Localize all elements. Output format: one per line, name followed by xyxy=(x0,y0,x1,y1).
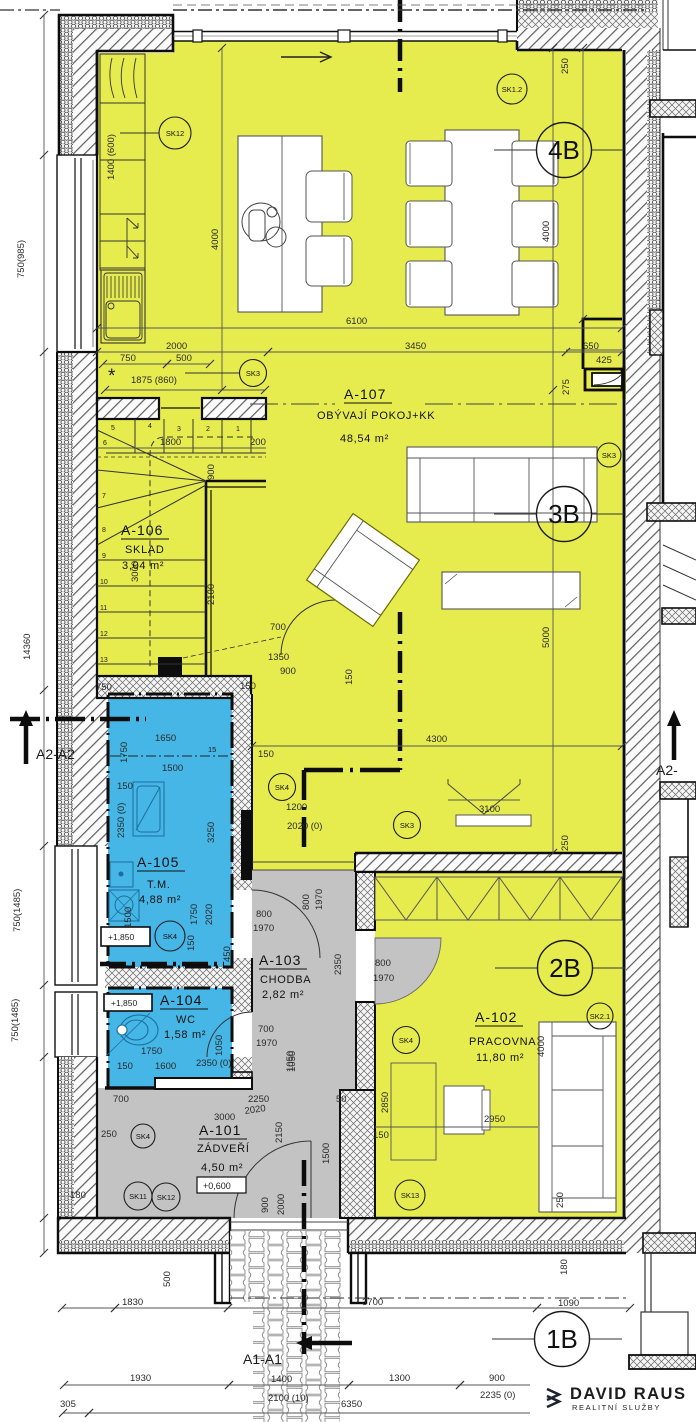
svg-text:SK3: SK3 xyxy=(246,369,260,378)
svg-text:SK1.2: SK1.2 xyxy=(502,85,522,94)
svg-text:4000: 4000 xyxy=(536,1036,547,1057)
svg-text:4000: 4000 xyxy=(210,229,221,250)
svg-text:A2-: A2- xyxy=(656,762,678,778)
svg-text:250: 250 xyxy=(560,58,571,74)
svg-text:3,04 m²: 3,04 m² xyxy=(122,560,164,572)
svg-text:1970: 1970 xyxy=(373,973,394,984)
svg-text:1800: 1800 xyxy=(160,437,181,448)
svg-text:1050: 1050 xyxy=(214,1035,225,1056)
svg-text:150: 150 xyxy=(186,935,197,951)
svg-text:SK4: SK4 xyxy=(136,1132,150,1141)
svg-text:500: 500 xyxy=(176,353,192,364)
svg-text:48,54 m²: 48,54 m² xyxy=(340,433,389,445)
svg-text:2850: 2850 xyxy=(380,1092,391,1113)
svg-text:1,58 m²: 1,58 m² xyxy=(164,1029,206,1041)
svg-text:250: 250 xyxy=(560,835,571,851)
svg-text:900: 900 xyxy=(489,1373,505,1384)
svg-text:2350: 2350 xyxy=(333,954,344,975)
svg-text:250: 250 xyxy=(555,1192,566,1208)
svg-text:2020: 2020 xyxy=(204,904,215,925)
svg-text:750(1485): 750(1485) xyxy=(10,999,21,1042)
svg-text:1970: 1970 xyxy=(314,889,325,910)
svg-text:2000: 2000 xyxy=(166,341,187,352)
svg-text:1750: 1750 xyxy=(141,1046,162,1057)
svg-text:200: 200 xyxy=(250,437,266,448)
svg-text:SK2.1: SK2.1 xyxy=(590,1012,610,1021)
svg-text:A-103: A-103 xyxy=(259,952,301,968)
svg-text:750(1485): 750(1485) xyxy=(12,889,23,932)
svg-text:15: 15 xyxy=(208,745,216,754)
svg-text:425: 425 xyxy=(596,355,612,366)
svg-text:SKLAD: SKLAD xyxy=(125,544,165,556)
svg-text:3100: 3100 xyxy=(479,804,500,815)
svg-text:SK11: SK11 xyxy=(129,1192,147,1201)
svg-text:A-106: A-106 xyxy=(121,522,163,538)
svg-text:1970: 1970 xyxy=(256,1038,277,1049)
svg-text:6100: 6100 xyxy=(346,316,367,327)
svg-text:2: 2 xyxy=(206,426,210,433)
svg-text:1650: 1650 xyxy=(155,733,176,744)
svg-text:150: 150 xyxy=(373,1130,389,1141)
svg-text:4300: 4300 xyxy=(426,734,447,745)
svg-text:SK3: SK3 xyxy=(400,821,414,830)
svg-text:500: 500 xyxy=(162,1271,173,1287)
svg-text:1500: 1500 xyxy=(321,1143,332,1164)
svg-text:1875 (860): 1875 (860) xyxy=(131,375,177,386)
svg-text:150: 150 xyxy=(117,1061,133,1072)
svg-text:14360: 14360 xyxy=(22,634,33,660)
svg-text:1050: 1050 xyxy=(285,1051,296,1072)
svg-text:1500: 1500 xyxy=(162,763,183,774)
svg-text:800: 800 xyxy=(301,894,312,910)
svg-text:A1-A1: A1-A1 xyxy=(243,1351,282,1367)
svg-text:1400: 1400 xyxy=(271,1374,292,1385)
svg-text:SK4: SK4 xyxy=(275,783,289,792)
svg-text:ZÁDVEŘÍ: ZÁDVEŘÍ xyxy=(197,1142,250,1155)
svg-text:DAVID RAUS: DAVID RAUS xyxy=(570,1385,686,1403)
svg-text:13: 13 xyxy=(100,657,108,664)
svg-text:1750: 1750 xyxy=(119,742,130,763)
svg-text:2350 (0): 2350 (0) xyxy=(116,803,127,838)
svg-text:1200: 1200 xyxy=(286,802,307,813)
svg-text:4,50 m²: 4,50 m² xyxy=(201,1162,243,1174)
svg-text:T.M.: T.M. xyxy=(147,879,171,891)
svg-text:+1,850: +1,850 xyxy=(111,998,138,1008)
svg-text:700: 700 xyxy=(270,622,286,633)
svg-text:900: 900 xyxy=(280,666,296,677)
svg-text:A-101: A-101 xyxy=(199,1122,241,1138)
svg-text:700: 700 xyxy=(258,1024,274,1035)
svg-text:305: 305 xyxy=(60,1399,76,1410)
svg-text:SK4: SK4 xyxy=(163,932,177,941)
svg-text:SK13: SK13 xyxy=(401,1191,419,1200)
svg-text:2,82 m²: 2,82 m² xyxy=(262,989,304,1001)
svg-text:50: 50 xyxy=(336,1094,347,1105)
svg-text:3B: 3B xyxy=(548,499,580,529)
svg-text:5000: 5000 xyxy=(541,627,552,648)
svg-text:3: 3 xyxy=(177,426,181,433)
svg-text:1600: 1600 xyxy=(155,1061,176,1072)
svg-text:9: 9 xyxy=(102,553,106,560)
svg-text:2235 (0): 2235 (0) xyxy=(480,1390,515,1401)
svg-text:1300: 1300 xyxy=(389,1373,410,1384)
svg-text:+1,850: +1,850 xyxy=(108,932,135,942)
svg-text:2020 (0): 2020 (0) xyxy=(287,821,322,832)
svg-text:900: 900 xyxy=(206,464,217,480)
svg-text:3700: 3700 xyxy=(362,1297,383,1308)
svg-text:5: 5 xyxy=(111,425,115,432)
svg-text:2100: 2100 xyxy=(206,584,217,605)
svg-text:800: 800 xyxy=(256,909,272,920)
svg-text:11: 11 xyxy=(100,605,107,612)
svg-text:900: 900 xyxy=(260,1197,271,1213)
svg-text:4000: 4000 xyxy=(541,221,552,242)
svg-text:1930: 1930 xyxy=(130,1373,151,1384)
svg-text:1400 (600): 1400 (600) xyxy=(106,134,117,180)
svg-text:150: 150 xyxy=(240,681,256,692)
svg-text:REALITNÍ SLUŽBY: REALITNÍ SLUŽBY xyxy=(572,1403,661,1412)
svg-text:800: 800 xyxy=(375,958,391,969)
svg-text:180: 180 xyxy=(559,1259,570,1275)
svg-text:1750: 1750 xyxy=(189,904,200,925)
svg-text:SK3: SK3 xyxy=(602,451,616,460)
svg-text:275: 275 xyxy=(561,379,572,395)
svg-text:4,88 m²: 4,88 m² xyxy=(139,894,181,906)
svg-text:4B: 4B xyxy=(548,135,580,165)
svg-text:*: * xyxy=(108,366,116,387)
svg-text:1970: 1970 xyxy=(253,923,274,934)
svg-text:12: 12 xyxy=(100,631,108,638)
svg-text:1B: 1B xyxy=(546,1324,578,1354)
svg-text:150: 150 xyxy=(117,781,133,792)
svg-text:6350: 6350 xyxy=(341,1399,362,1410)
svg-text:750: 750 xyxy=(96,682,112,693)
svg-text:PRACOVNA: PRACOVNA xyxy=(469,1036,536,1048)
svg-text:750: 750 xyxy=(120,353,136,364)
svg-text:10: 10 xyxy=(100,579,108,586)
svg-text:8: 8 xyxy=(102,527,106,534)
svg-text:2150: 2150 xyxy=(274,1122,285,1143)
svg-text:A-102: A-102 xyxy=(475,1009,517,1025)
svg-text:SK12: SK12 xyxy=(157,1193,175,1202)
svg-text:+0,600: +0,600 xyxy=(203,1181,231,1191)
svg-text:11,80 m²: 11,80 m² xyxy=(476,1052,524,1064)
svg-text:450: 450 xyxy=(222,946,233,962)
svg-text:250: 250 xyxy=(101,1129,117,1140)
svg-text:A2-A2: A2-A2 xyxy=(36,746,75,762)
svg-text:750(985): 750(985) xyxy=(16,240,27,278)
svg-text:CHODBA: CHODBA xyxy=(260,974,311,986)
svg-text:150: 150 xyxy=(344,669,355,685)
svg-text:2000: 2000 xyxy=(276,1194,287,1215)
svg-text:3250: 3250 xyxy=(206,822,217,843)
svg-text:A-107: A-107 xyxy=(344,386,386,402)
svg-text:150: 150 xyxy=(258,749,274,760)
svg-text:1500: 1500 xyxy=(123,907,134,928)
svg-text:180: 180 xyxy=(70,1190,86,1201)
svg-text:6: 6 xyxy=(103,440,107,447)
svg-text:2100 (10): 2100 (10) xyxy=(268,1393,309,1404)
svg-text:4: 4 xyxy=(148,423,152,430)
svg-text:A-104: A-104 xyxy=(160,992,202,1008)
svg-text:3450: 3450 xyxy=(405,341,426,352)
svg-text:OBÝVAJÍ POKOJ+KK: OBÝVAJÍ POKOJ+KK xyxy=(317,409,435,422)
svg-text:1090: 1090 xyxy=(558,1298,579,1309)
svg-text:2950: 2950 xyxy=(484,1114,505,1125)
svg-text:1830: 1830 xyxy=(122,1297,143,1308)
svg-text:2B: 2B xyxy=(549,953,581,983)
svg-text:7: 7 xyxy=(102,493,106,500)
svg-text:SK4: SK4 xyxy=(399,1036,413,1045)
svg-text:1: 1 xyxy=(236,426,240,433)
svg-text:SK12: SK12 xyxy=(166,129,184,138)
svg-text:700: 700 xyxy=(113,1094,129,1105)
svg-text:1350: 1350 xyxy=(268,652,289,663)
svg-text:A-105: A-105 xyxy=(137,854,179,870)
svg-text:WC: WC xyxy=(176,1014,196,1026)
svg-text:2350 (0): 2350 (0) xyxy=(196,1058,231,1069)
